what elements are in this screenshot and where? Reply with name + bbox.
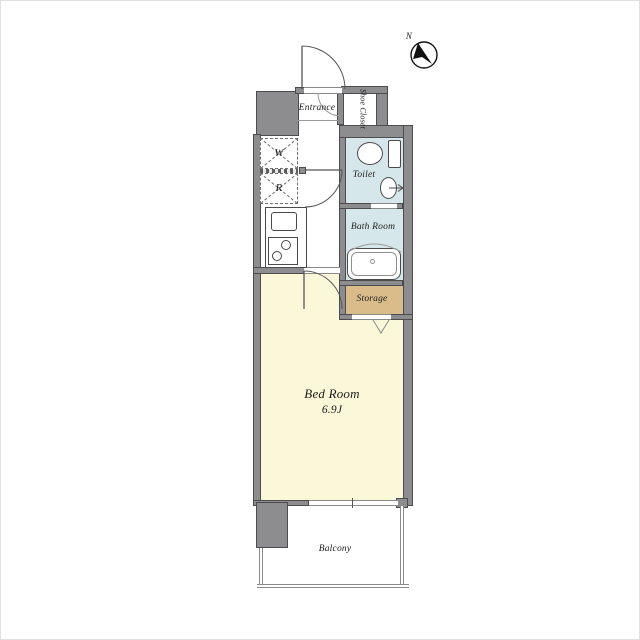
corridor-door-arc xyxy=(305,170,342,207)
north-compass xyxy=(411,42,437,68)
bedroom-size-label: 6.9J xyxy=(322,404,342,416)
refrigerator-label: R xyxy=(276,182,283,194)
shoe-closet-label: Shoe Closet xyxy=(359,89,368,129)
compass-north-label: N xyxy=(406,31,412,41)
basin-faucet-arrow xyxy=(389,185,403,192)
storage-folding-door xyxy=(373,320,389,333)
bedroom-door-arc xyxy=(304,271,342,309)
entrance-label: Entrance xyxy=(299,103,335,113)
storage-label: Storage xyxy=(357,294,388,304)
bath-door-arc xyxy=(348,244,401,252)
balcony-label: Balcony xyxy=(319,544,352,554)
bath-room-label: Bath Room xyxy=(351,222,395,232)
floor-plan: N Entrance Shoe Closet Toilet Bath Room … xyxy=(0,0,640,640)
entrance-door-arc xyxy=(302,46,345,89)
washer-label: W xyxy=(274,147,283,159)
toilet-label: Toilet xyxy=(353,170,376,180)
bedroom-label: Bed Room xyxy=(304,386,359,402)
